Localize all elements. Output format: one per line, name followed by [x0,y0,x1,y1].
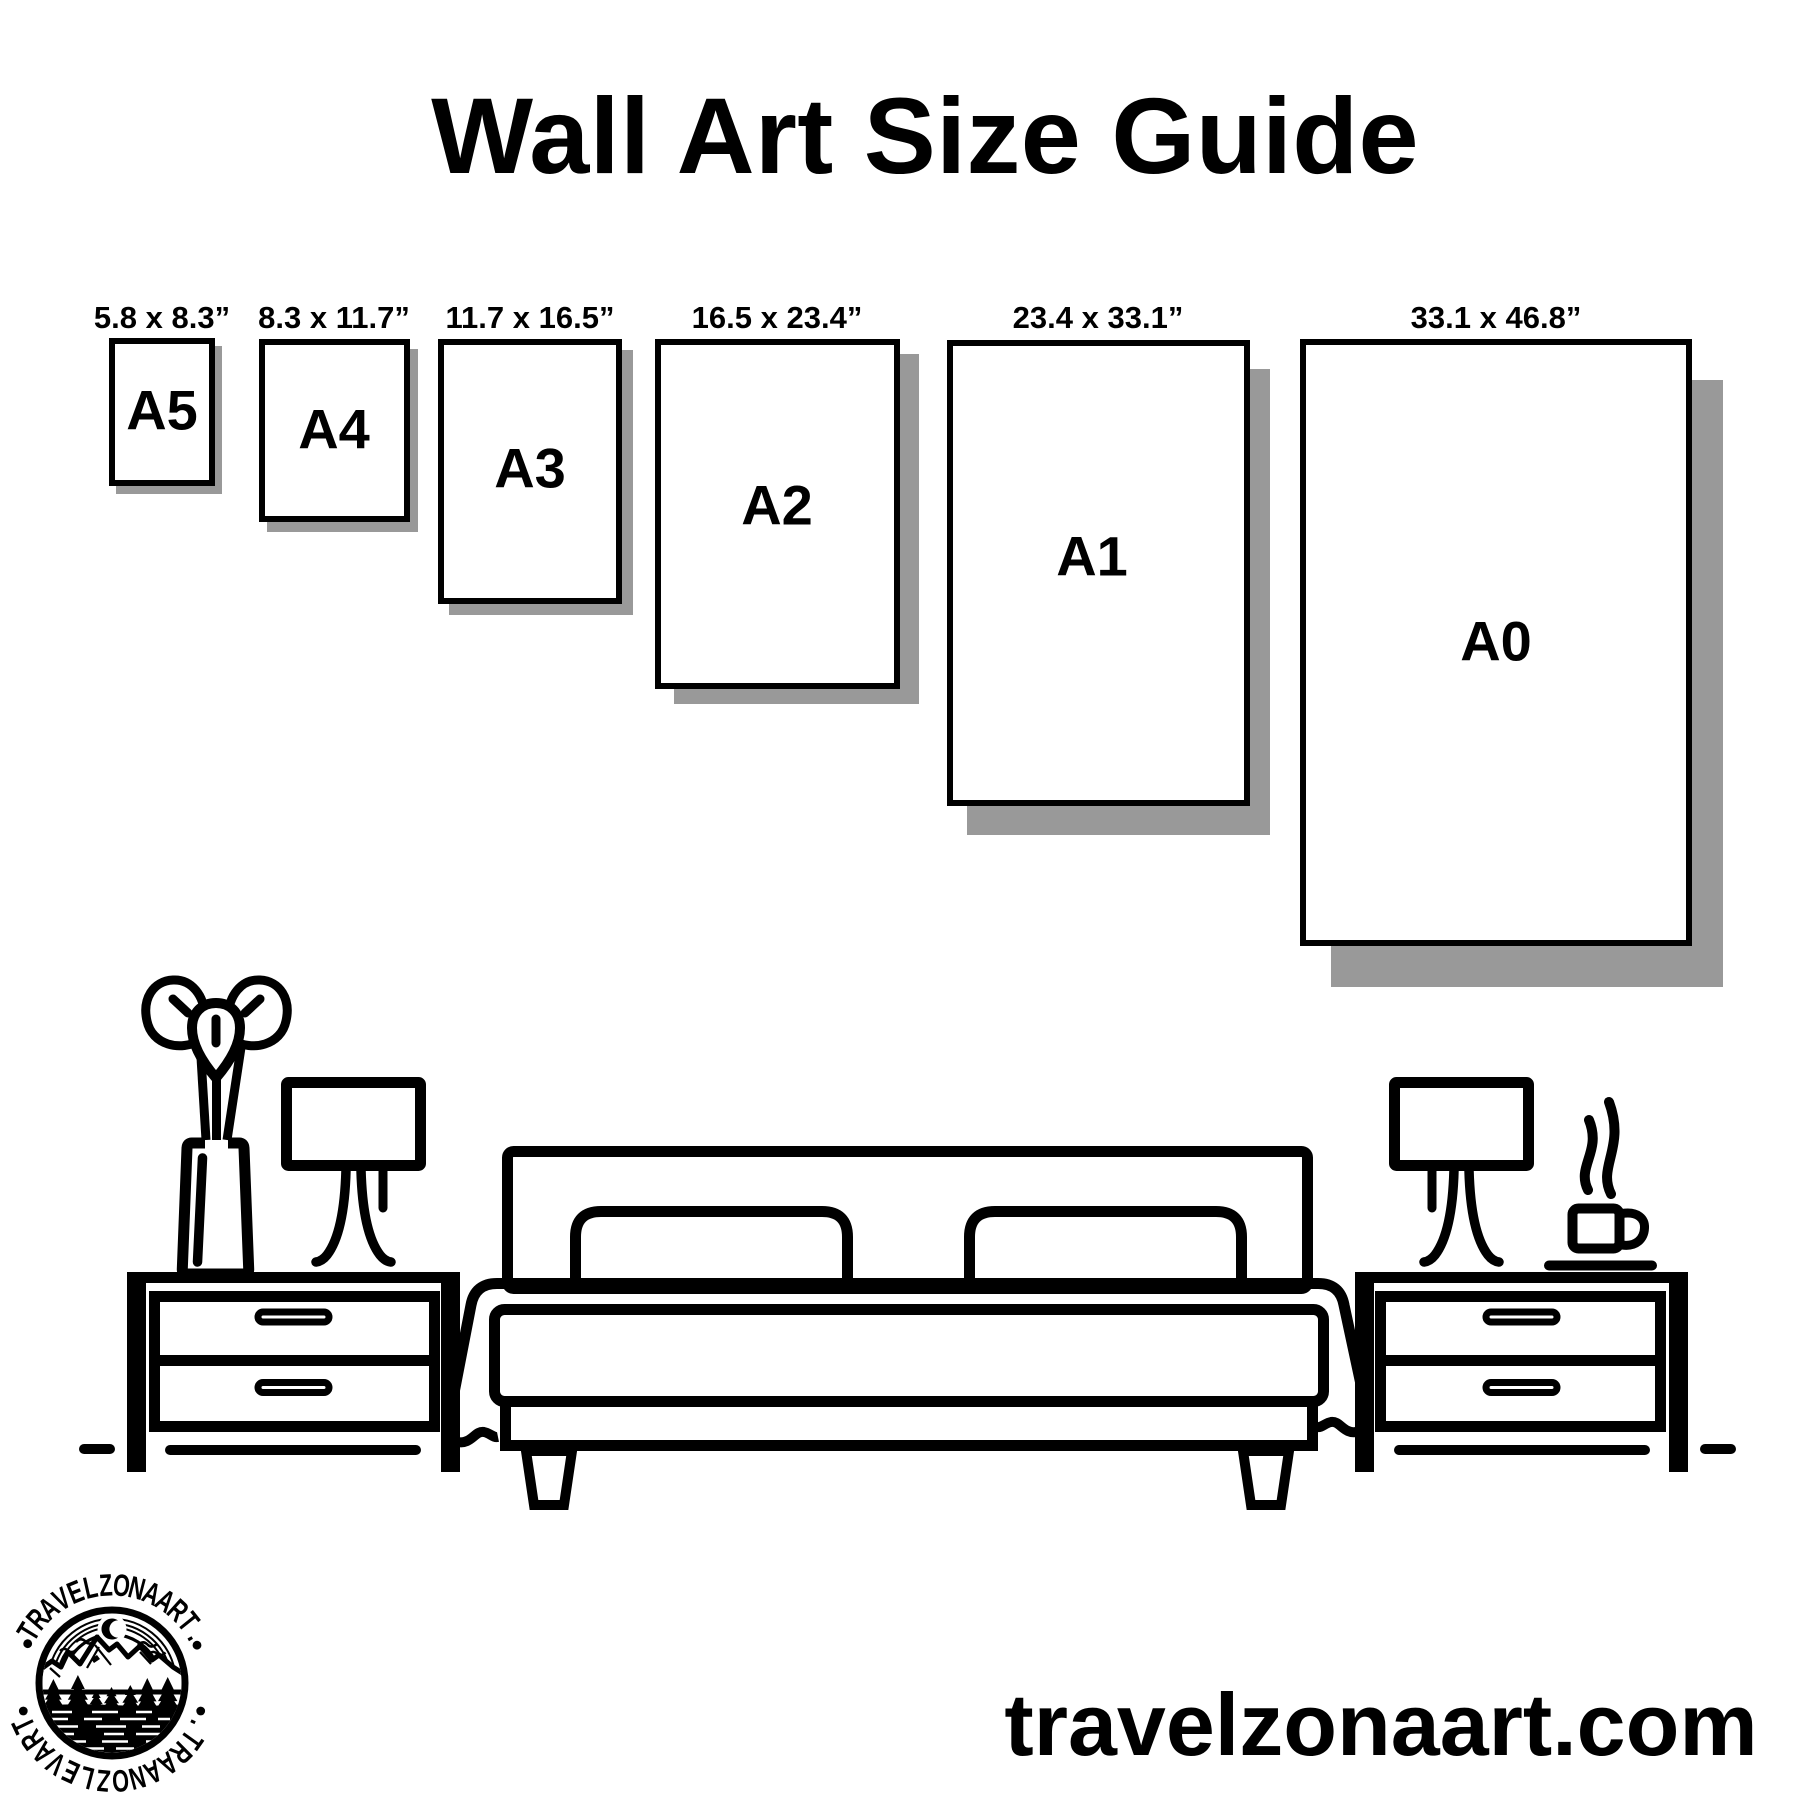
svg-text:Z: Z [95,1763,111,1799]
